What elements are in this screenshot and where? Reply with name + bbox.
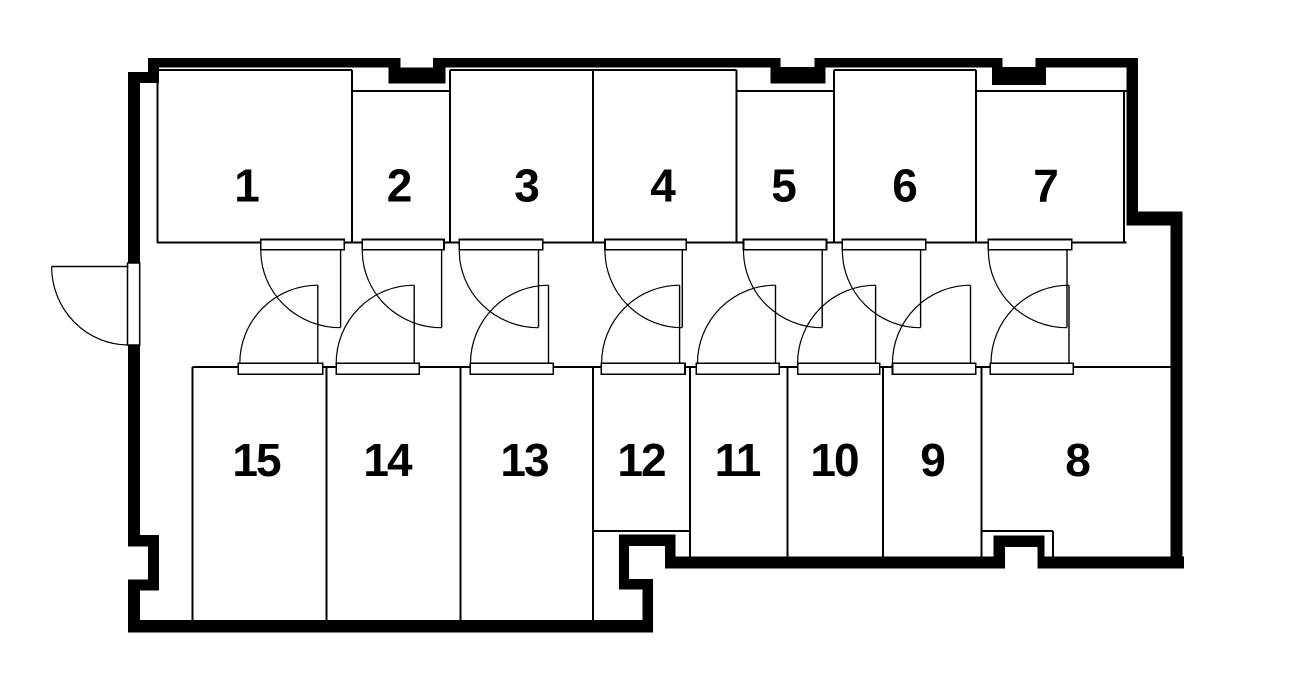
svg-text:5: 5: [771, 160, 797, 212]
svg-text:12: 12: [617, 434, 665, 486]
svg-text:14: 14: [363, 434, 413, 486]
svg-text:8: 8: [1065, 434, 1091, 486]
svg-text:10: 10: [810, 434, 858, 486]
svg-text:11: 11: [715, 434, 761, 486]
svg-text:9: 9: [920, 434, 946, 486]
svg-text:7: 7: [1033, 160, 1059, 212]
svg-text:15: 15: [232, 434, 281, 486]
svg-text:2: 2: [387, 160, 413, 212]
svg-text:1: 1: [234, 160, 260, 212]
svg-text:6: 6: [892, 160, 918, 212]
svg-text:13: 13: [500, 434, 548, 486]
svg-text:4: 4: [650, 160, 676, 212]
svg-text:3: 3: [514, 160, 540, 212]
